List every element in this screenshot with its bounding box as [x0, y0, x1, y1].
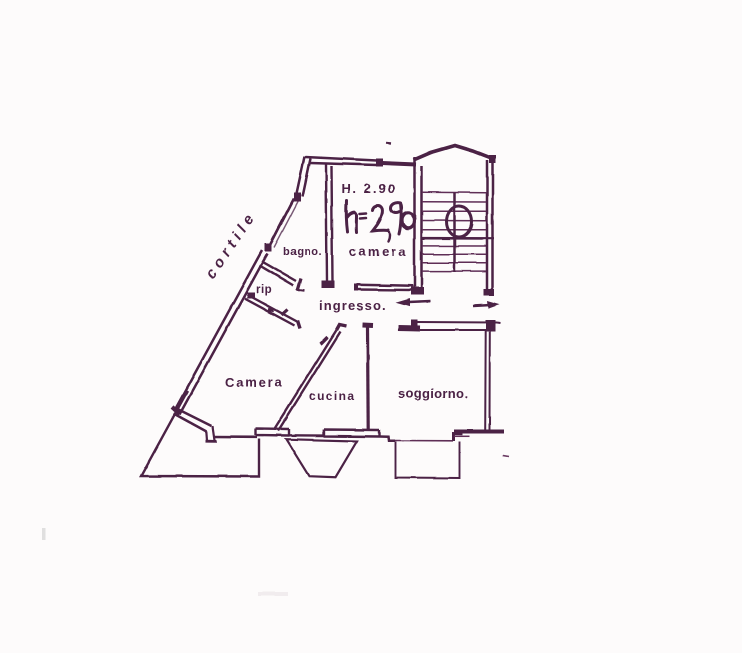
svg-text:ingresso.: ingresso.	[319, 298, 387, 313]
svg-text:bagno.: bagno.	[283, 246, 322, 258]
svg-text:cucina: cucina	[309, 389, 355, 403]
svg-text:soggiorno.: soggiorno.	[398, 386, 468, 401]
svg-text:H. 2.90: H. 2.90	[341, 181, 397, 196]
svg-text:rip: rip	[256, 284, 272, 296]
svg-text:camera: camera	[349, 244, 408, 259]
svg-text:Camera: Camera	[225, 375, 284, 390]
